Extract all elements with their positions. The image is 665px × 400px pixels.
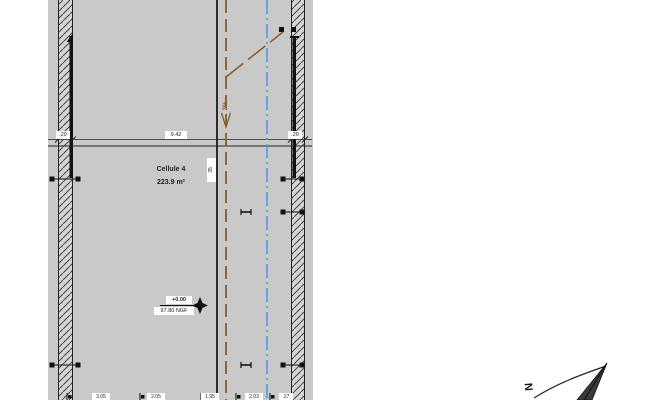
slope-percentage-label: 2% xyxy=(222,98,231,114)
wall-tie-markers xyxy=(50,177,304,367)
joint-marker xyxy=(241,362,251,368)
room-name: Cellule 4 xyxy=(140,166,202,173)
bottom-dimension-label: 3.05 xyxy=(92,393,110,400)
level-relative-label: +0.00 xyxy=(166,296,192,304)
dimension-label-wall-left: .20 xyxy=(56,131,70,139)
anchor-dot-left xyxy=(279,27,284,32)
plan-drawing-layer xyxy=(0,0,665,400)
level-marker-icon xyxy=(192,297,208,314)
north-arrow-icon xyxy=(534,363,607,400)
dimension-label-span: 9.42 xyxy=(165,131,187,139)
anchor-dot-right xyxy=(291,27,296,32)
room-area: 223.9 m² xyxy=(140,179,202,186)
joint-marker xyxy=(241,209,251,215)
bottom-dimension-label: 2.05 xyxy=(147,393,165,400)
cad-plan-view: .20 9.42 .20 Cellule 4 223.9 m² 35 2% +0… xyxy=(0,0,665,400)
right-wall xyxy=(290,0,305,400)
north-label: N xyxy=(522,383,535,392)
level-absolute-label: 97.80 NGF xyxy=(154,307,194,315)
left-wall xyxy=(58,0,73,400)
joint-dimension-label: 35 xyxy=(207,158,216,182)
downpipe-line xyxy=(226,32,283,77)
bottom-dimension-label: .27 xyxy=(279,393,293,400)
bottom-dimension-label: 1.95 xyxy=(201,393,219,400)
bottom-dimension-label: 2.03 xyxy=(245,393,263,400)
dimension-label-wall-right: .20 xyxy=(288,131,302,139)
